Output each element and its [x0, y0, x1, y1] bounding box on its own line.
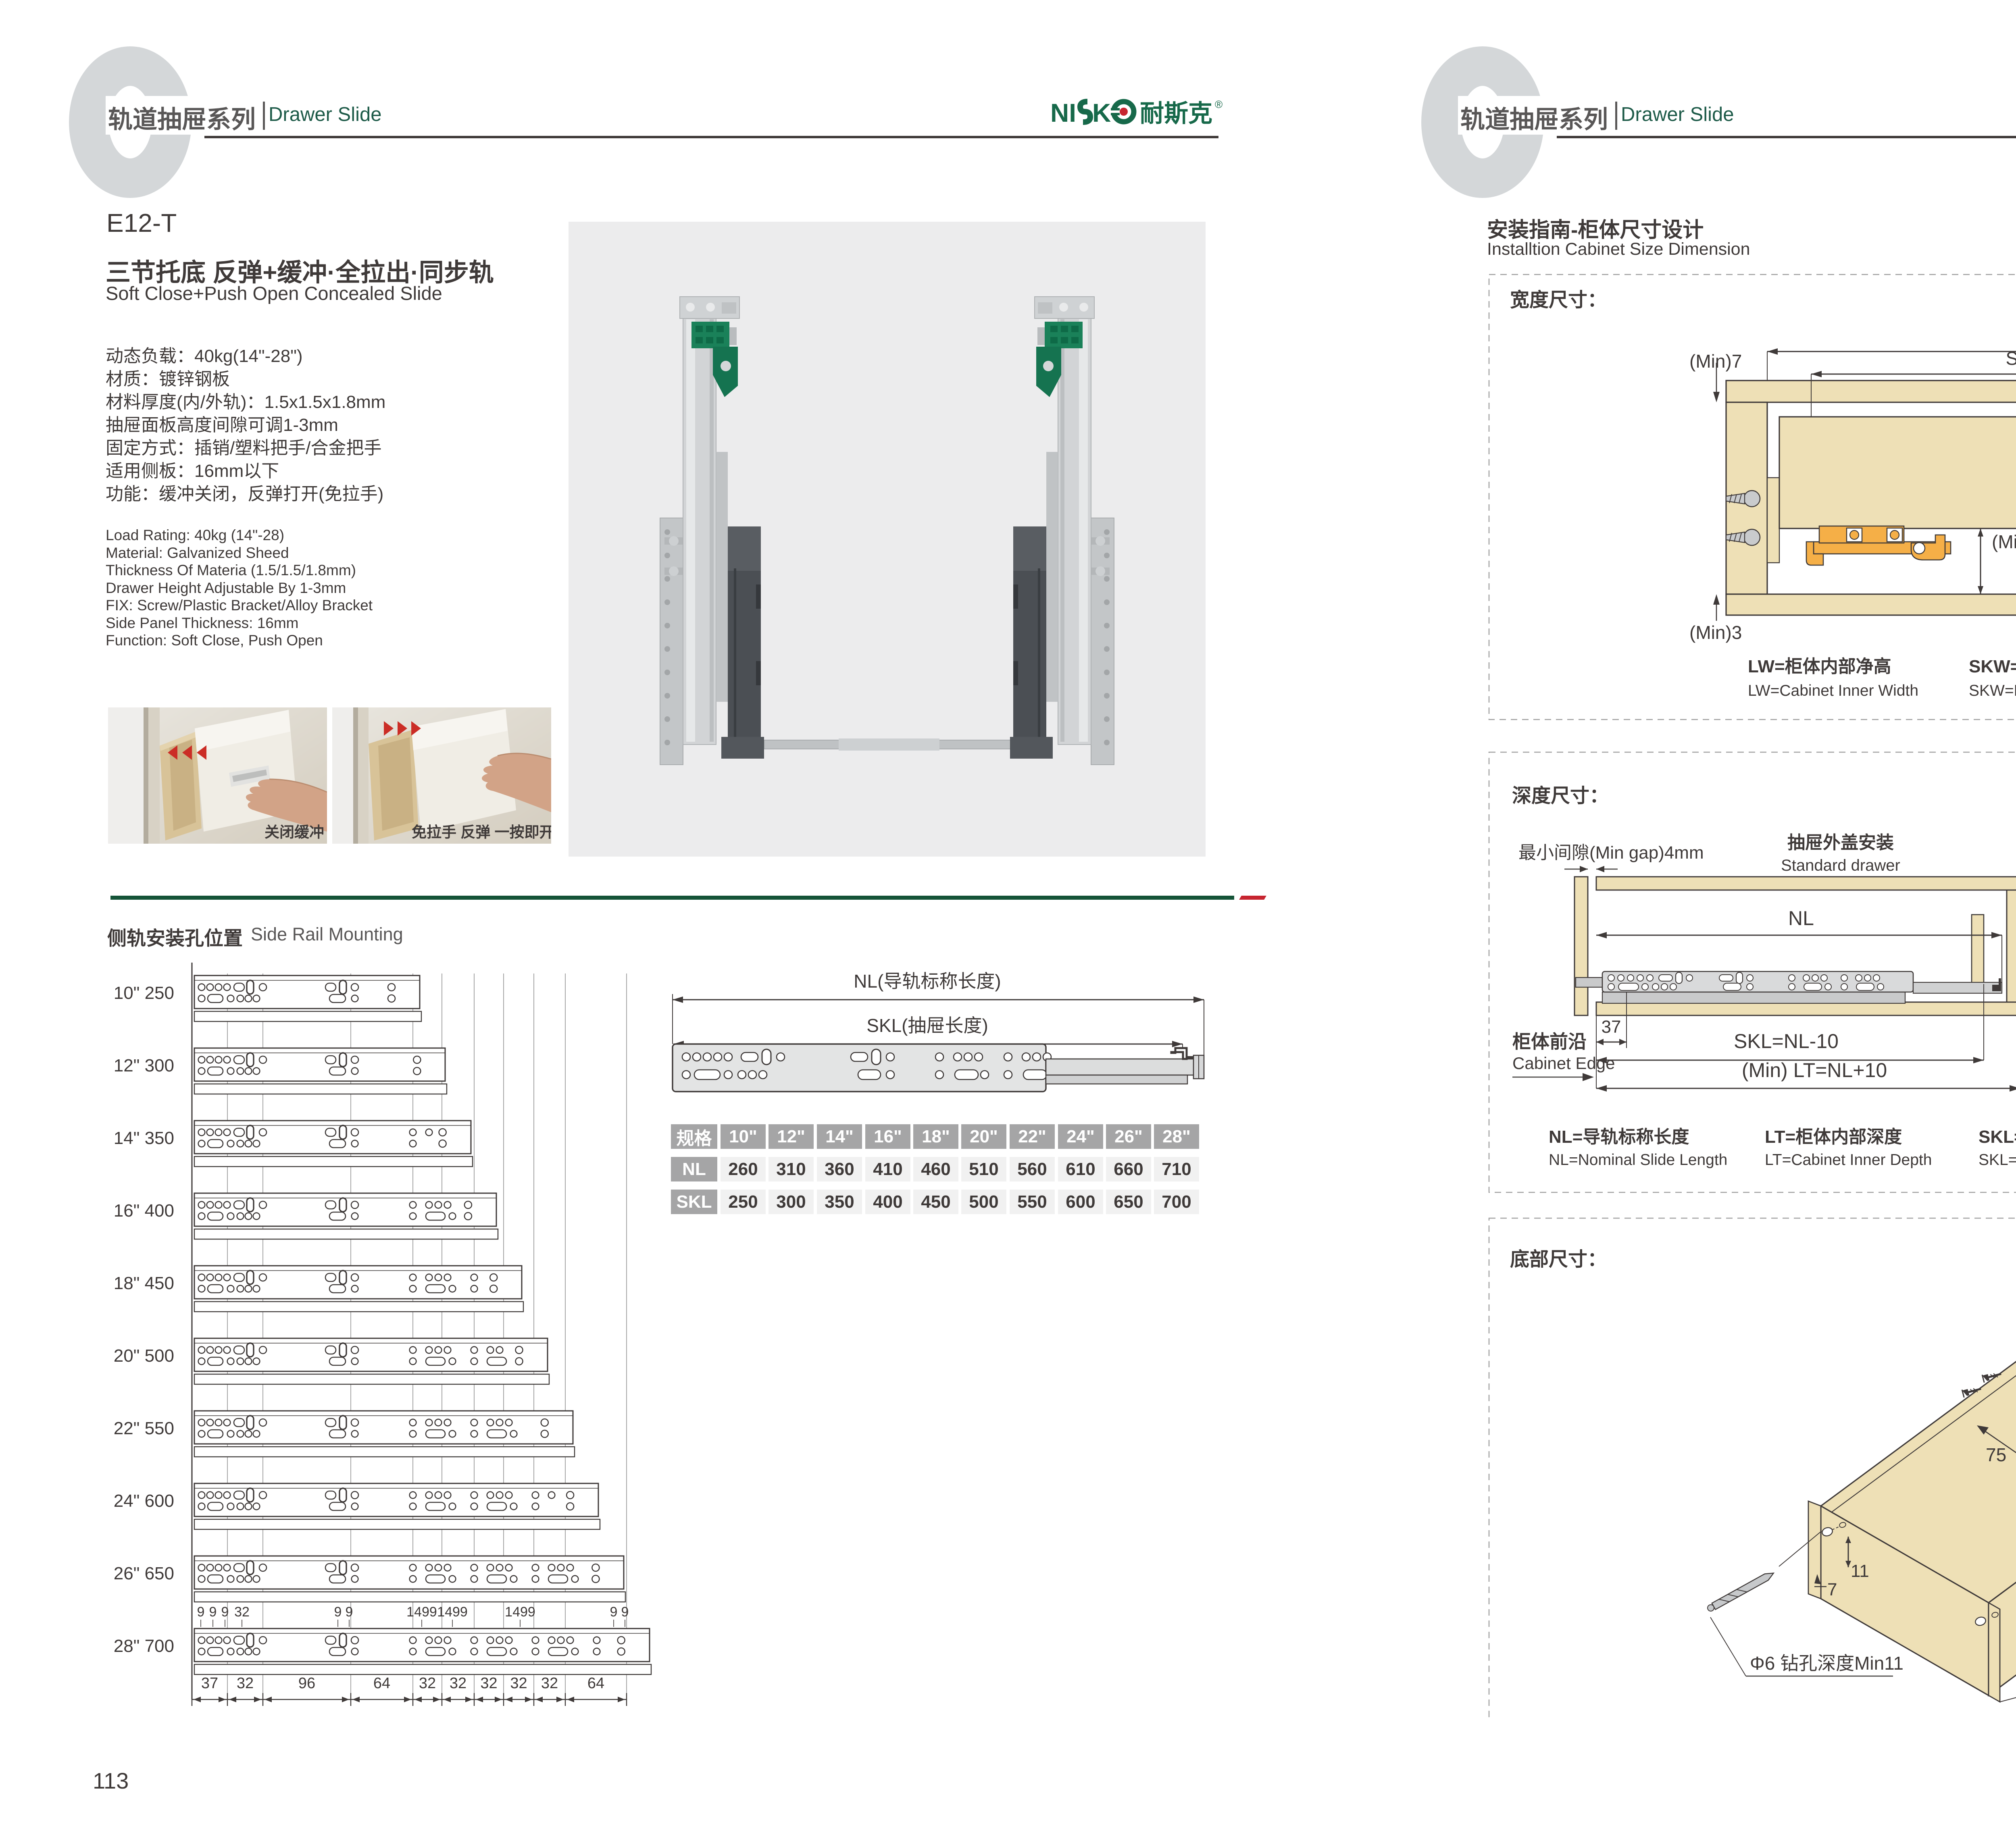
svg-text:NL=导轨标称长度: NL=导轨标称长度 — [1549, 1127, 1689, 1147]
svg-text:(Min)7: (Min)7 — [1689, 351, 1742, 372]
svg-text:LW=柜体内部净高: LW=柜体内部净高 — [1748, 657, 1891, 676]
svg-text:9: 9 — [197, 1604, 205, 1620]
svg-text:SKW=抽屉宽度: SKW=抽屉宽度 — [1969, 657, 2016, 676]
svg-text:柜体前沿: 柜体前沿 — [1512, 1031, 1587, 1052]
svg-text:(Min)3: (Min)3 — [1689, 622, 1742, 643]
svg-text:9: 9 — [334, 1604, 342, 1620]
svg-text:37: 37 — [1602, 1017, 1621, 1037]
svg-text:LW=Cabinet Inner Width: LW=Cabinet Inner Width — [1748, 682, 1918, 699]
svg-text:LT=Cabinet Inner Depth: LT=Cabinet Inner Depth — [1765, 1151, 1932, 1169]
svg-text:24" 600: 24" 600 — [114, 1491, 174, 1511]
svg-text:免拉手 反弹 一按即开: 免拉手 反弹 一按即开 — [412, 824, 551, 840]
svg-text:14" 350: 14" 350 — [114, 1128, 174, 1148]
svg-text:7: 7 — [1827, 1580, 1837, 1599]
svg-text:NI: NI — [1050, 98, 1076, 127]
svg-text:底部尺寸：: 底部尺寸： — [1510, 1249, 1607, 1270]
svg-text:9: 9 — [346, 1604, 353, 1620]
svg-text:1499: 1499 — [406, 1604, 437, 1620]
svg-text:K: K — [1092, 98, 1111, 127]
svg-text:9: 9 — [221, 1604, 229, 1620]
svg-text:11: 11 — [1851, 1561, 1869, 1581]
svg-text:Φ6 钻孔深度Min11: Φ6 钻孔深度Min11 — [1750, 1653, 1904, 1674]
svg-text:NL=Nominal Slide Length: NL=Nominal Slide Length — [1549, 1151, 1727, 1169]
svg-text:16" 400: 16" 400 — [114, 1201, 174, 1221]
svg-text:抽屉外盖安装: 抽屉外盖安装 — [1787, 833, 1894, 853]
svg-text:9: 9 — [621, 1604, 629, 1620]
svg-text:关闭缓冲: 关闭缓冲 — [264, 824, 324, 840]
svg-text:SKL(抽屉长度): SKL(抽屉长度) — [866, 1015, 988, 1036]
svg-text:32: 32 — [450, 1675, 467, 1692]
svg-text:12" 300: 12" 300 — [114, 1056, 174, 1075]
svg-text:1499: 1499 — [505, 1604, 535, 1620]
svg-text:64: 64 — [587, 1675, 604, 1692]
svg-text:最小间隙(Min gap)4mm: 最小间隙(Min gap)4mm — [1518, 843, 1704, 863]
svg-text:SKL=NL-10: SKL=NL-10 — [1734, 1030, 1839, 1052]
svg-text:SKL=抽屉长度: SKL=抽屉长度 — [1979, 1127, 2016, 1147]
svg-text:9: 9 — [209, 1604, 217, 1620]
svg-text:(Min) LT=NL+10: (Min) LT=NL+10 — [1742, 1059, 1887, 1082]
svg-text:®: ® — [1215, 98, 1223, 110]
svg-text:26" 650: 26" 650 — [114, 1564, 174, 1583]
svg-text:28" 700: 28" 700 — [114, 1636, 174, 1656]
svg-text:宽度尺寸：: 宽度尺寸： — [1510, 289, 1607, 311]
svg-text:20" 500: 20" 500 — [114, 1346, 174, 1366]
svg-text:37: 37 — [201, 1675, 218, 1692]
svg-text:32: 32 — [480, 1675, 497, 1692]
svg-text:18" 450: 18" 450 — [114, 1273, 174, 1293]
svg-text:96: 96 — [298, 1675, 315, 1692]
svg-text:32: 32 — [237, 1675, 254, 1692]
svg-text:耐斯克: 耐斯克 — [1140, 100, 1212, 127]
svg-text:1499: 1499 — [437, 1604, 468, 1620]
svg-text:SKL=Drawer Length: SKL=Drawer Length — [1979, 1151, 2016, 1169]
svg-text:32: 32 — [510, 1675, 527, 1692]
svg-text:10" 250: 10" 250 — [114, 983, 174, 1003]
svg-text:SKW=LW-42: SKW=LW-42 — [2006, 348, 2016, 369]
svg-text:LT=柜体内部深度: LT=柜体内部深度 — [1765, 1127, 1902, 1147]
svg-text:Cabinet Edge: Cabinet Edge — [1512, 1054, 1615, 1073]
svg-text:32: 32 — [234, 1604, 250, 1620]
svg-text:SKW=Drawer Width: SKW=Drawer Width — [1969, 682, 2016, 699]
svg-text:75: 75 — [1986, 1444, 2006, 1465]
svg-text:NL: NL — [1788, 907, 1814, 930]
svg-text:32: 32 — [541, 1675, 558, 1692]
svg-text:32: 32 — [419, 1675, 436, 1692]
svg-text:Standard drawer: Standard drawer — [1781, 857, 1900, 874]
svg-text:NL(导轨标称长度): NL(导轨标称长度) — [854, 971, 1001, 992]
svg-text:64: 64 — [373, 1675, 390, 1692]
svg-text:9: 9 — [610, 1604, 618, 1620]
svg-text:(Min)27.5: (Min)27.5 — [1992, 531, 2016, 552]
svg-text:深度尺寸：: 深度尺寸： — [1512, 785, 1609, 807]
svg-text:22" 550: 22" 550 — [114, 1419, 174, 1438]
